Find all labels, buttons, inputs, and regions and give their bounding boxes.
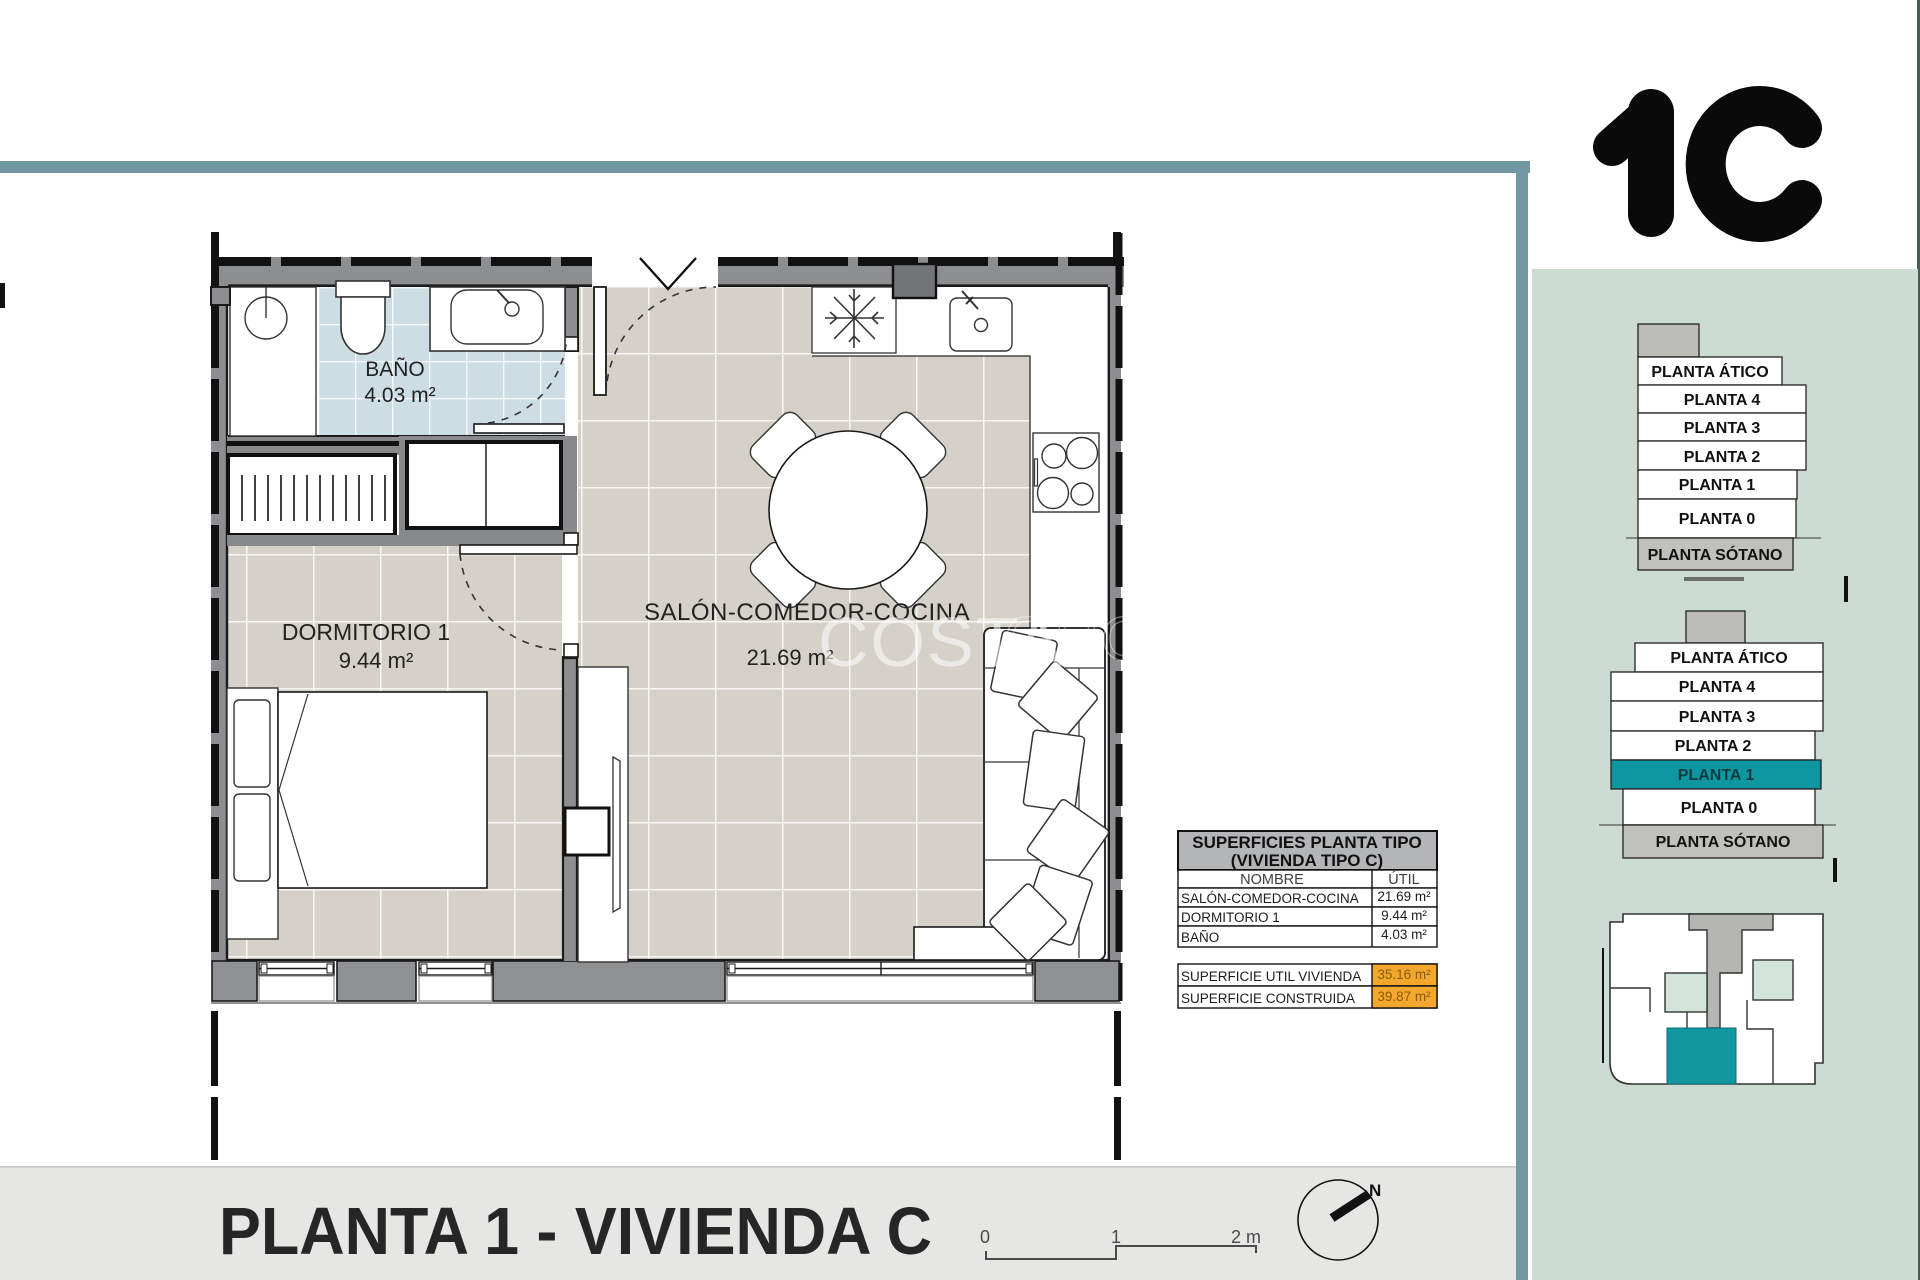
svg-text:2 m: 2 m (1231, 1227, 1261, 1247)
svg-text:PLANTA 2: PLANTA 2 (1684, 449, 1761, 466)
svg-text:4.03 m²: 4.03 m² (364, 384, 435, 407)
svg-text:PLANTA 0: PLANTA 0 (1679, 511, 1756, 528)
svg-text:(VIVIENDA TIPO C): (VIVIENDA TIPO C) (1231, 851, 1383, 870)
svg-text:1: 1 (1111, 1227, 1121, 1247)
svg-text:9.44 m²: 9.44 m² (339, 648, 414, 673)
svg-text:PLANTA 0: PLANTA 0 (1681, 800, 1758, 817)
svg-text:BAÑO: BAÑO (365, 357, 425, 381)
svg-text:SUPERFICIES PLANTA TIPO: SUPERFICIES PLANTA TIPO (1192, 833, 1422, 852)
svg-text:PLANTA 3: PLANTA 3 (1684, 420, 1761, 437)
svg-text:9.44 m²: 9.44 m² (1381, 908, 1427, 923)
svg-text:PLANTA 4: PLANTA 4 (1679, 679, 1756, 696)
svg-text:PLANTA ÁTICO: PLANTA ÁTICO (1670, 648, 1787, 667)
svg-text:SALÓN-COMEDOR-COCINA: SALÓN-COMEDOR-COCINA (1181, 891, 1359, 906)
svg-text:SUPERFICIE CONSTRUIDA: SUPERFICIE CONSTRUIDA (1181, 991, 1355, 1006)
svg-text:PLANTA 2: PLANTA 2 (1675, 738, 1752, 755)
svg-text:35.16 m²: 35.16 m² (1377, 967, 1431, 982)
svg-text:DORMITORIO 1: DORMITORIO 1 (282, 619, 450, 645)
svg-text:39.87 m²: 39.87 m² (1377, 989, 1431, 1004)
svg-text:NOMBRE: NOMBRE (1240, 872, 1304, 888)
svg-text:0: 0 (980, 1227, 990, 1247)
svg-text:SUPERFICIE UTIL VIVIENDA: SUPERFICIE UTIL VIVIENDA (1181, 969, 1361, 984)
svg-text:PLANTA 1 - VIVIENDA C: PLANTA 1 - VIVIENDA C (219, 1194, 932, 1269)
svg-text:PLANTA ÁTICO: PLANTA ÁTICO (1651, 362, 1768, 381)
svg-text:PLANTA SÓTANO: PLANTA SÓTANO (1648, 545, 1783, 564)
svg-text:PLANTA SÓTANO: PLANTA SÓTANO (1656, 832, 1791, 851)
svg-text:PLANTA 4: PLANTA 4 (1684, 392, 1761, 409)
svg-text:PLANTA 3: PLANTA 3 (1679, 709, 1756, 726)
svg-text:4.03 m²: 4.03 m² (1381, 927, 1427, 942)
svg-text:DORMITORIO 1: DORMITORIO 1 (1181, 910, 1280, 925)
svg-text:BAÑO: BAÑO (1181, 930, 1219, 945)
svg-text:21.69 m²: 21.69 m² (1377, 889, 1431, 904)
svg-text:GROUP: GROUP (1004, 605, 1241, 674)
svg-text:PLANTA 1: PLANTA 1 (1678, 767, 1755, 784)
svg-text:PLANTA 1: PLANTA 1 (1679, 477, 1756, 494)
svg-text:N: N (1369, 1181, 1381, 1200)
svg-text:ÚTIL: ÚTIL (1388, 871, 1419, 888)
